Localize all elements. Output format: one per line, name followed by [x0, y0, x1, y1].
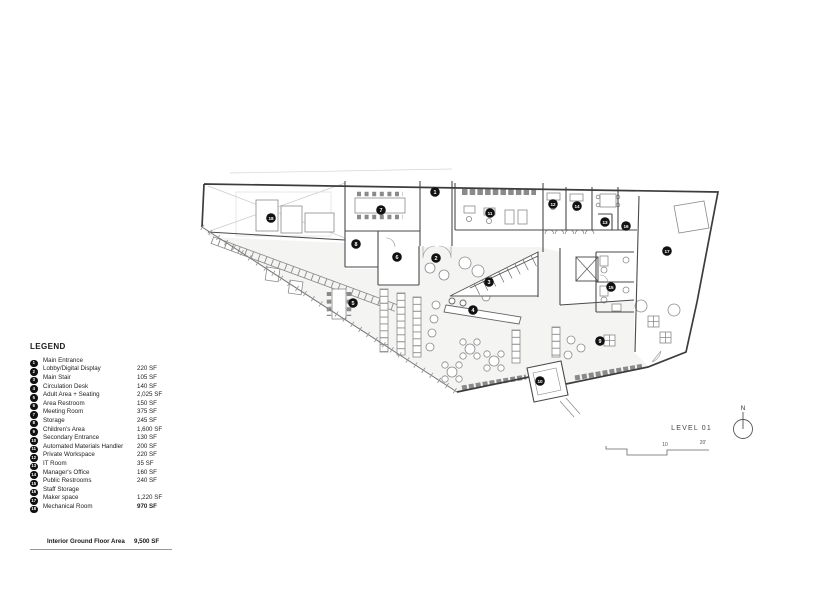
svg-text:16: 16 [623, 224, 629, 229]
svg-text:2: 2 [435, 256, 438, 262]
svg-text:4: 4 [472, 308, 475, 314]
plan-marker: 8 [351, 239, 361, 249]
svg-text:12: 12 [550, 202, 556, 207]
north-label: N [741, 405, 746, 412]
svg-text:15: 15 [608, 285, 614, 290]
scale-tick-10: 10 [662, 442, 668, 448]
svg-text:6: 6 [396, 255, 399, 261]
level-label: LEVEL 01 [671, 425, 712, 432]
svg-text:13: 13 [602, 220, 608, 225]
plan-marker: 5 [348, 298, 358, 308]
svg-text:18: 18 [268, 216, 274, 221]
svg-text:17: 17 [664, 249, 670, 254]
plan-marker: 12 [548, 199, 558, 209]
plan-marker: 10 [535, 376, 545, 386]
elevator [576, 257, 598, 281]
svg-text:3: 3 [488, 280, 491, 286]
floor-plan: 123456789101112131415161718 LEVEL 01 N 1… [0, 0, 818, 614]
plan-marker: 4 [468, 305, 478, 315]
plan-marker: 13 [600, 217, 610, 227]
svg-text:9: 9 [599, 339, 602, 345]
svg-text:11: 11 [488, 211, 493, 216]
plan-marker: 14 [572, 201, 582, 211]
plan-marker: 15 [606, 282, 616, 292]
scale-bar: 10 20' [606, 440, 709, 455]
plan-marker: 7 [376, 205, 386, 215]
plan-marker: 1 [430, 187, 440, 197]
plan-marker: 2 [431, 253, 441, 263]
plan-marker: 18 [266, 213, 276, 223]
plan-marker: 17 [662, 246, 672, 256]
svg-text:8: 8 [355, 242, 358, 248]
drawing-sheet: LEGEND 1Main Entrance2Lobby/Digital Disp… [0, 0, 818, 614]
svg-text:14: 14 [574, 204, 580, 209]
svg-text:5: 5 [352, 301, 355, 307]
svg-text:1: 1 [434, 190, 437, 196]
plan-marker: 9 [595, 336, 605, 346]
open-floor-tint [203, 228, 648, 391]
svg-text:7: 7 [380, 208, 383, 214]
plan-marker: 16 [621, 221, 631, 231]
svg-text:10: 10 [537, 379, 543, 384]
plan-marker: 11 [485, 208, 495, 218]
plan-marker: 6 [392, 252, 402, 262]
north-arrow-icon: N [734, 405, 753, 439]
scale-tick-20: 20' [700, 440, 707, 446]
plan-marker: 3 [484, 277, 494, 287]
